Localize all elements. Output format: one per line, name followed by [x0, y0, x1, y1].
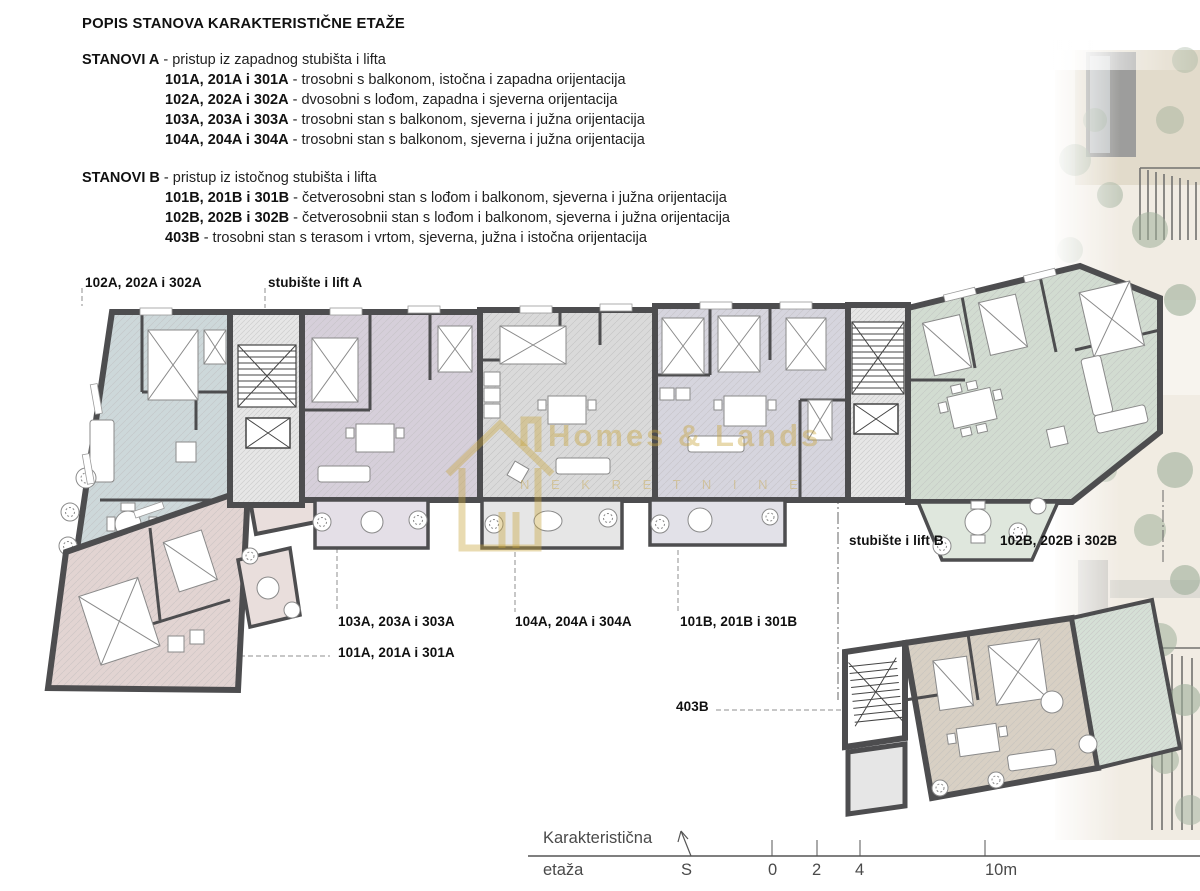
stairwell-b [848, 305, 908, 500]
north-arrow-icon [678, 831, 691, 856]
scale-tick-4: 4 [855, 861, 864, 880]
legend-group-a-items: 101A, 201A i 301A - trosobni s balkonom,… [165, 70, 730, 150]
legend-item: 102A, 202A i 302A - dvosobni s lođom, za… [165, 90, 730, 110]
scale-tick-0: 0 [768, 861, 777, 880]
legend-title: POPIS STANOVA KARAKTERISTIČNE ETAŽE [82, 14, 730, 34]
stairwell-a [230, 312, 302, 505]
label-unit-403b: 403B [676, 699, 709, 714]
scale-title-line2: etaža [543, 861, 583, 880]
legend-item: 104A, 204A i 304A - trosobni stan s balk… [165, 130, 730, 150]
unit-103a [302, 312, 480, 548]
label-unit-101b: 101B, 201B i 301B [680, 614, 797, 629]
north-label: S [681, 861, 692, 880]
legend-item: 403B - trosobni stan s terasom i vrtom, … [165, 228, 730, 248]
legend-block: POPIS STANOVA KARAKTERISTIČNE ETAŽE STAN… [82, 14, 730, 248]
label-unit-104a: 104A, 204A i 304A [515, 614, 632, 629]
legend-item: 101B, 201B i 301B - četverosobni stan s … [165, 188, 730, 208]
legend-group-a-header: STANOVI A - pristup iz zapadnog stubišta… [82, 50, 730, 70]
legend-item: 103A, 203A i 303A - trosobni stan s balk… [165, 110, 730, 130]
label-unit-102a: 102A, 202A i 302A [85, 275, 202, 290]
scale-tick-10m: 10m [985, 861, 1017, 880]
label-unit-102b: 102B, 202B i 302B [1000, 533, 1117, 548]
legend-group-b-items: 101B, 201B i 301B - četverosobni stan s … [165, 188, 730, 248]
legend-item: 102B, 202B i 302B - četverosobnii stan s… [165, 208, 730, 228]
watermark-subtitle: N E K R E T N I N E [520, 477, 807, 492]
label-unit-103a: 103A, 203A i 303A [338, 614, 455, 629]
label-stair-a: stubište i lift A [268, 275, 362, 290]
scale-title-line1: Karakteristična [543, 829, 652, 848]
legend-item: 101A, 201A i 301A - trosobni s balkonom,… [165, 70, 730, 90]
legend-group-b-header: STANOVI B - pristup iz istočnog stubišta… [82, 168, 730, 188]
watermark-title: Homes & Lands [548, 418, 821, 454]
label-stair-b: stubište i lift B [849, 533, 944, 548]
scale-tick-2: 2 [812, 861, 821, 880]
label-unit-101a: 101A, 201A i 301A [338, 645, 455, 660]
